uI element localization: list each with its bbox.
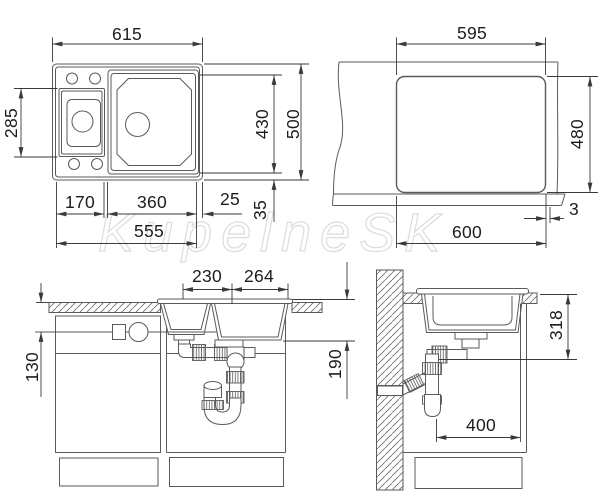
tap-hole (69, 159, 80, 170)
left-bowl (59, 89, 105, 157)
dim-label-400: 400 (451, 415, 511, 435)
wall-section (377, 270, 404, 490)
dim-label-615: 615 (97, 24, 157, 44)
drain-hole (72, 111, 93, 132)
technical-drawing-sheet: KupelneSK (0, 0, 600, 494)
dim-label-318: 318 (546, 295, 566, 355)
countertop-section (49, 303, 161, 313)
dim-label-264: 264 (229, 266, 289, 286)
dim-label-3: 3 (544, 199, 600, 219)
main-bowl-section (212, 304, 289, 341)
drain-plumbing-side (403, 333, 487, 417)
dim-label-190: 190 (325, 334, 345, 394)
tap-hole (67, 73, 78, 84)
sink-rim (417, 289, 529, 295)
dim-label-480: 480 (567, 104, 587, 164)
cutout-opening (397, 77, 546, 193)
dim-label-500: 500 (283, 94, 303, 154)
drain-hole (126, 113, 150, 137)
sink-outline (53, 64, 203, 180)
dim-label-595: 595 (442, 23, 502, 43)
sink-front-section (158, 299, 293, 340)
dim-label-35: 35 (250, 180, 270, 240)
dim-label-285: 285 (1, 93, 21, 153)
connection-circle-symbol (129, 323, 148, 342)
bowl-section (422, 294, 524, 333)
tap-hole (92, 159, 103, 170)
dim-label-600: 600 (437, 222, 497, 242)
dim-label-430: 430 (252, 94, 272, 154)
dim-label-230: 230 (177, 266, 237, 286)
main-bowl (108, 70, 199, 174)
dim-label-360: 360 (122, 192, 182, 212)
break-line (557, 62, 558, 194)
tap-hole (90, 73, 101, 84)
dim-label-170: 170 (50, 192, 110, 212)
drain-plumbing (174, 335, 255, 425)
trap-cup (425, 395, 441, 417)
dim-label-130: 130 (22, 337, 42, 397)
break-line (334, 62, 343, 194)
connection-square-symbol (113, 325, 126, 340)
countertop-section (292, 303, 322, 313)
front-view (35, 262, 355, 487)
sink-rim (158, 299, 293, 304)
dim-label-555: 555 (119, 221, 179, 241)
